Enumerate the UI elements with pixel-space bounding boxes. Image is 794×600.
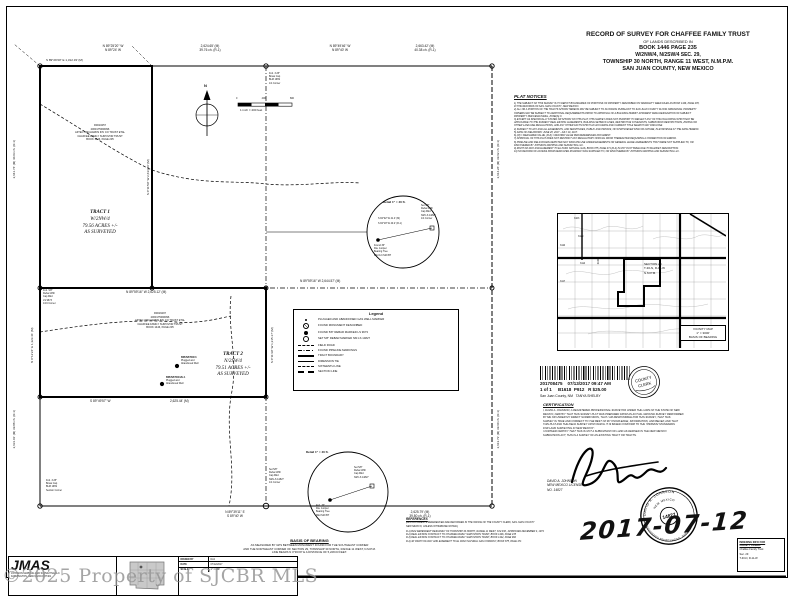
legend-box: Legend PLUGGED AND ABANDONED GAS WELL MA… [293,309,459,391]
survey-plat-sheet: S 89°29'30" E 1,312.33' (M) N 89°25'20" … [0,0,794,600]
south-bearing: N 89°39'11" E S 89°40' W [200,510,270,519]
references: REFERENCES (ALL DOCUMENTS REFERENCED ARE… [406,517,641,543]
tract1-east-label: S 0°11'59" W 2,634.20' (M) [146,117,150,237]
detail2-right-note: Set 5/8"Rebar WithCap MkdNM LS 14827 [354,466,369,479]
north-west-distance: 2,624.65' (M) 39.76 ch. (R-1) [175,44,245,53]
north-east-bearing: N 89°49'46" W N 89°40' W [305,44,375,53]
tract2-east-label: S 0°11'39" W 1,315.17' (M) [270,295,274,395]
detail1-left-note: Found 36"Dia. JuniperBearing TreeMkd 1/4… [374,244,391,257]
quarter-line-label: N 89°59'16" W 2,644.57' (M) [300,279,340,283]
legend-title: Legend [297,311,455,317]
vicinity-section-label: SECTION 29 T-30-N, R-11-W N.M.P.M. [644,262,665,275]
tract1-owner-block: R00102572060175096096AZTEC ORCHARDS INV … [53,124,147,142]
certification-lines: I, DAVID A. JOHNSON, A REGISTERED PROFES… [543,409,793,437]
detail1-tree-marker [377,239,380,242]
west-line-south-label: 2,631.01' (M) 39.88 ch. (R-1) [12,379,16,479]
county-clerk-stamp-icon: COUNTY CLERK [626,364,662,400]
field-road-line-vertical [229,296,234,506]
north-label: N [204,83,207,89]
mls-watermark: ©2025 Property of SJCBR MLS [2,565,318,587]
plat-notices-header: PLAT NOTICES [514,94,788,100]
west-line-north-label: 2,641.74' (M) 40.03 ch. (R-1) [12,109,16,209]
recording-stamp: 201708475 07/13/2017 09:47 AM 1 of 1 B16… [540,366,790,398]
north-east-distance: 2,663.42' (M) 40.38 ch. (R-1) [390,44,460,53]
basis-lines: AS MEASURED BY GPS BETWEEN MONUMENT FOUN… [182,544,437,556]
title-block: RECORD OF SURVEY FOR CHAFFEE FAMILY TRUS… [548,30,788,74]
tract2-south-distance: 2,625.44' (M) [170,399,189,403]
field-road-line-icon [297,345,315,346]
title-line1: RECORD OF SURVEY FOR CHAFFEE FAMILY TRUS… [548,30,788,39]
east-line-south-label: 2,613.73' (M) 39.60 ch. (R-1) [496,379,500,479]
set-rebar-icon [297,336,315,342]
section-line-icon [297,371,315,373]
tract2-south-bearing: S 89°49'57" W [90,399,111,403]
detail2-inner-tie [330,486,372,500]
tract1-boundary [40,66,152,288]
north-tie-label: S 89°29'30" E 1,312.33' (M) [46,58,83,62]
detail1-tie2: S 84°18' W 40.2' (R-1) [378,222,402,225]
tract2-label-block: TRACT 2 N/2SW/4 79.51 ACRES +/- AS SURVE… [186,352,280,379]
references-intro: (ALL DOCUMENTS REFERENCED ARE RECORDED I… [406,521,641,527]
vicinity-road-number: 3114 [580,262,585,265]
vicinity-road-number: 3110 [560,244,565,247]
vicinity-map: SECTION 29 T-30-N, R-11-W N.M.P.M. VICIN… [557,213,729,351]
well-label-2: BRUNSTON 2H-1 Plugged and Abandoned Well [166,376,185,386]
monument-note-north-quarter: Fnd. 3.25"Brass CapBLM 19691/4 Corner [269,72,280,85]
monument-note-sixteenth-west: Fnd. 5/8"Rebar WithCap MkdLS 96731/16 Co… [43,289,56,305]
title-line6: SAN JUAN COUNTY, NEW MEXICO [548,66,788,73]
gas-well-marker-2 [160,382,163,385]
vicinity-road-number: 3117 [560,280,565,283]
monument-note-south-quarter: Set 5/8"Rebar WithCap MkdNM-LS 148271/4 … [269,468,284,484]
barcode-icon [540,366,630,380]
gas-well-marker-icon [297,319,315,322]
scale-ticks: 0 400 800 [236,97,294,100]
title-line5: TOWNSHIP 30 NORTH, RANGE 11 WEST, N.M.P.… [548,59,788,66]
certification-header: CERTIFICATION [543,402,793,408]
vicinity-road-number: 3100 [597,259,600,264]
found-rebar-icon [297,331,315,335]
tract-boundary-line-icon [297,355,315,357]
tract2-west-label: N 0°12'24" E 1,323.41' (M) [30,295,34,395]
corner-tie-line [14,44,40,66]
gas-well-marker-1 [175,364,178,367]
detail2-circle [308,452,388,532]
tract2-owner-block: R00162972060175096096AZTEC ORCHARDS INV … [112,312,208,330]
scale-bar-icon [238,103,292,106]
detail1-tie1: S 84°02' W 41.4' (M) [378,217,400,220]
plat-notices-lines: 1) THE SUBJECT OF THIS SURVEY IS TO DEPI… [514,102,788,154]
dimension-tie-line-icon [297,361,315,362]
vicinity-road-diagonal [690,214,726,236]
certification: CERTIFICATION I, DAVID A. JOHNSON, A REG… [543,402,793,437]
vicinity-road-number: 3103 [574,217,579,220]
north-west-bearing: N 89°25'20" W N 89°24' W [78,44,148,53]
north-arrow-icon [196,90,218,136]
vicinity-caption-box: VICINITY MAP 1" = 3000' BASIS OF BEARING [680,325,726,341]
stamp-county-line: San Juan County, NM TANYA SHELBY [540,394,790,399]
pipeline-line-icon [297,350,315,351]
well-label-1: BRUNSTON 3 Plugged and Abandoned Well [181,356,199,366]
detail1-title: Detail 1" = 40 ft. [383,200,406,204]
title-line3: BOOK 1446 PAGE 235 [548,45,788,52]
surveyor-name-block: DAVID A. JOHNSON NEW MEXICO LICENSE NO. … [547,479,582,492]
detail2-tree-marker [329,499,332,502]
monument-note-sw-corner: Fnd. 3.25"Brass CapBLM 1969Section Corne… [46,479,62,492]
detail2-left-note: Fnd. 36"Dia. JuniperBearing TreeMkd S29 … [316,504,330,517]
plat-notices: PLAT NOTICES 1) THE SUBJECT OF THIS SURV… [514,94,788,154]
tract1-label-block: TRACT 1 W/2NW/4 79.56 ACRES +/- AS SURVE… [53,210,147,237]
detail1-right-note: Set 5/8"Rebar WithCap MkdNM LS 148271/4 … [421,204,436,220]
sixteenth-line-icon [297,366,315,367]
references-lines: R-1) BLM DEPENDENT RESURVEY OF TOWNSHIP … [406,530,641,543]
detail1-inner-tie [378,228,432,240]
detail2-title: Detail 1" = 40 ft. [306,450,329,454]
scale-caption: 1 inch = 400 feet [240,108,262,112]
indexing-box: INDEXING INFO FOR COUNTY CLERK: Chaffee … [737,538,785,572]
found-monument-icon [297,323,315,329]
vicinity-road-number: 3129 [578,235,583,238]
tract2-north-label: N 89°59'16" W 2,625.12' (M) [126,290,166,294]
title-line4: W/2NW/4, N/2SW/4 SEC. 29, [548,52,788,59]
east-line-north-label: 2,614.26' (M) 39.62 ch. (R-1) [496,109,500,209]
pipeline-markings-line [40,104,360,185]
basis-of-bearing: BASIS OF BEARING AS MEASURED BY GPS BETW… [182,538,437,555]
